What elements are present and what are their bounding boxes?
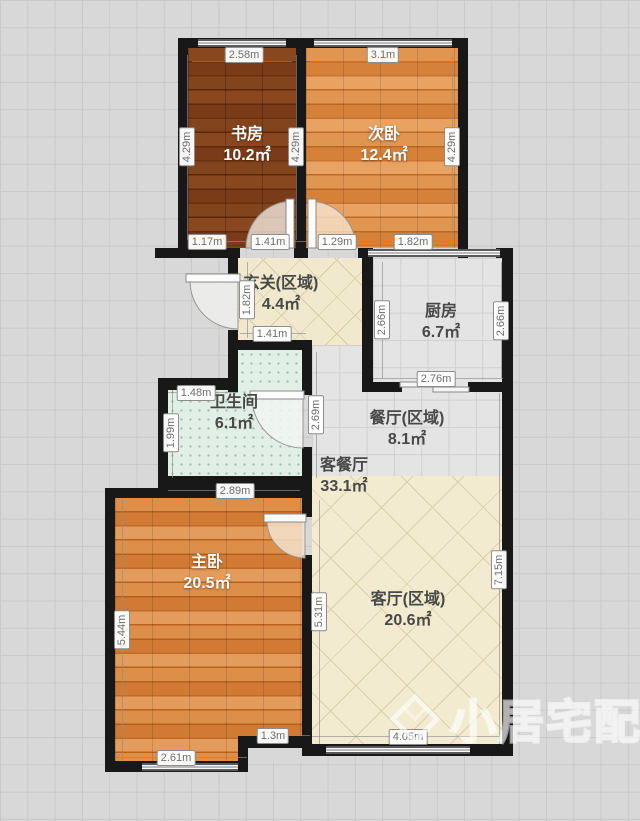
dimension-label: 1.17m	[188, 234, 227, 250]
room-area: 12.4㎡	[360, 146, 407, 165]
room-name: 主卧	[183, 553, 230, 572]
room-master-bedroom-floor	[115, 498, 302, 761]
dimension-label: 4.29m	[444, 128, 460, 167]
room-label-master-bedroom: 主卧 20.5㎡	[183, 553, 230, 593]
room-label-second-bedroom: 次卧 12.4㎡	[360, 125, 407, 165]
dimension-label: 2.89m	[216, 483, 255, 499]
room-area: 20.5㎡	[183, 574, 230, 593]
dimension-label: 1.82m	[239, 281, 255, 320]
dimension-label: 1.41m	[253, 326, 292, 342]
watermark: 小居宅配	[388, 686, 640, 752]
room-area: 8.1㎡	[370, 430, 445, 449]
wall	[302, 555, 312, 750]
room-label-dining: 餐厅(区域) 8.1㎡	[370, 409, 445, 449]
exterior-notch	[248, 748, 302, 762]
wall	[294, 248, 308, 258]
room-name: 书房	[223, 125, 270, 144]
window-study	[198, 39, 286, 47]
dimension-label: 2.66m	[374, 301, 390, 340]
room-bathroom-floor-upper	[238, 350, 302, 390]
room-area: 33.1㎡	[320, 477, 368, 496]
dimension-label: 5.31m	[311, 593, 327, 632]
window-kitchen	[368, 249, 500, 257]
room-name: 餐厅(区域)	[370, 409, 445, 428]
room-label-living: 客厅(区域) 20.6㎡	[371, 590, 446, 630]
room-name: 客餐厅	[320, 456, 368, 475]
dimension-label: 2.69m	[308, 396, 324, 435]
dimension-label: 1.41m	[251, 234, 290, 250]
room-name: 客厅(区域)	[371, 590, 446, 609]
dimension-label: 5.44m	[114, 611, 130, 650]
wall	[362, 382, 402, 392]
wall	[302, 340, 312, 395]
dimension-label: 4.29m	[179, 128, 195, 167]
room-area: 10.2㎡	[223, 146, 270, 165]
dimension-label: 4.29m	[288, 128, 304, 167]
room-area: 20.6㎡	[371, 611, 446, 630]
dimension-label: 7.15m	[491, 551, 507, 590]
wall	[302, 476, 312, 517]
window-second-bedroom	[314, 39, 452, 47]
dimension-label: 1.48m	[177, 385, 216, 401]
room-area: 6.1㎡	[210, 414, 258, 433]
dimension-label: 1.99m	[163, 414, 179, 453]
room-area: 6.7㎡	[422, 323, 460, 342]
door-main-entrance	[186, 274, 240, 329]
dimension-label: 2.66m	[493, 302, 509, 341]
dimension-label: 3.1m	[367, 47, 399, 63]
watermark-text: 小居宅配	[450, 686, 640, 752]
dimension-label: 1.3m	[257, 728, 289, 744]
wall	[362, 248, 373, 392]
room-label-living-dining: 客餐厅 33.1㎡	[320, 456, 368, 496]
room-name: 次卧	[360, 125, 407, 144]
dimension-label: 1.82m	[394, 234, 433, 250]
wall	[228, 258, 238, 282]
dimension-label: 1.29m	[318, 234, 357, 250]
diamond-gem-logo-icon	[388, 692, 442, 746]
dimension-label: 2.76m	[417, 371, 456, 387]
room-name: 卫生间	[210, 393, 258, 412]
room-label-kitchen: 厨房 6.7㎡	[422, 302, 460, 342]
dimension-label: 2.61m	[157, 750, 196, 766]
room-label-study: 书房 10.2㎡	[223, 125, 270, 165]
floor-plan-canvas: 2.58m 3.1m 4.29m 4.29m 4.29m 1.17m 1.41m…	[0, 0, 640, 821]
dimension-label: 2.58m	[225, 47, 264, 63]
room-name: 厨房	[422, 302, 460, 321]
room-label-bathroom: 卫生间 6.1㎡	[210, 393, 258, 433]
